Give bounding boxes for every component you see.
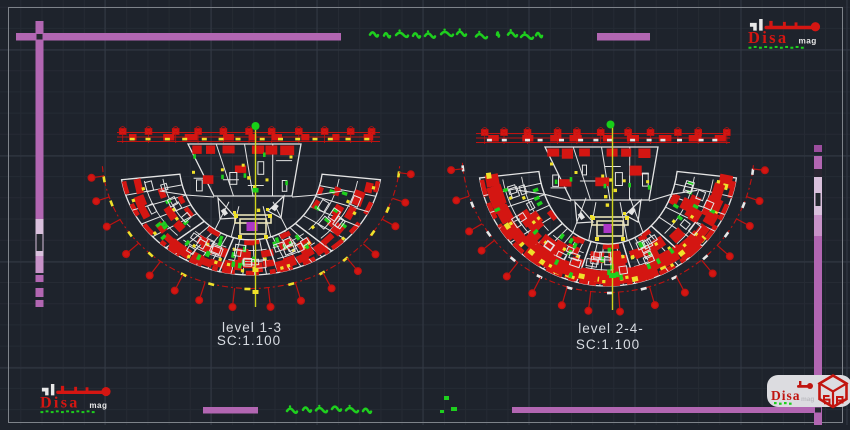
svg-text:level 2-4-: level 2-4-: [578, 321, 644, 336]
svg-text:Disa: Disa: [748, 28, 788, 47]
svg-text:Disa: Disa: [40, 395, 80, 412]
svg-text:SC:1.100: SC:1.100: [217, 333, 281, 348]
svg-text:mag: mag: [89, 401, 107, 410]
svg-text:SC:1.100: SC:1.100: [576, 337, 640, 352]
svg-text:Disa: Disa: [771, 388, 801, 403]
svg-text:mag: mag: [801, 396, 814, 403]
svg-text:mag: mag: [798, 37, 816, 46]
